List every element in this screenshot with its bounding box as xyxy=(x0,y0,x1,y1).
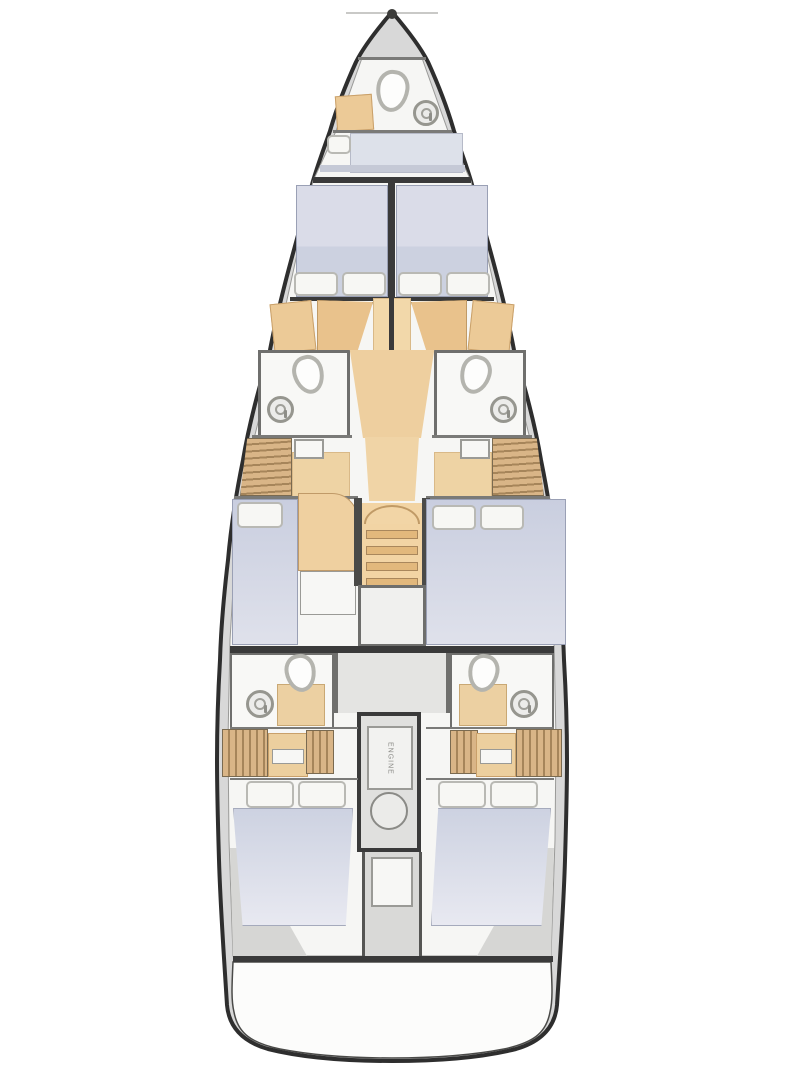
stair-tread xyxy=(366,562,418,571)
stern-bulkhead xyxy=(233,956,553,962)
aft-port-pillow-1 xyxy=(246,781,294,808)
engine-room-forward-area xyxy=(334,653,450,713)
mid-starboard-cabin-floor xyxy=(434,452,492,500)
companionway-stairs xyxy=(362,503,422,585)
forward-centerline-wall xyxy=(388,183,395,300)
forward-port-pillow-2 xyxy=(342,272,386,296)
mid-port-hanging-locker xyxy=(240,438,292,496)
mid-starboard-seat xyxy=(460,439,490,459)
sink-tap xyxy=(528,705,531,713)
aft-port-entry-step xyxy=(272,749,304,764)
engine-compartment: ENGINE xyxy=(357,712,421,852)
stair-arch xyxy=(364,505,420,524)
aft-locker-hatch xyxy=(371,857,413,907)
companionway-wall-port xyxy=(354,498,362,586)
aft-port-pillow-2 xyxy=(298,781,346,808)
stair-tread xyxy=(366,530,418,539)
port-vanity-cabinet xyxy=(270,300,317,354)
transom-platform xyxy=(232,962,552,1058)
stair-tread xyxy=(366,546,418,555)
sink-tap xyxy=(264,705,267,713)
bow-fitting xyxy=(387,9,397,19)
aft-head-port-sink-icon xyxy=(246,690,274,718)
mid-port-head-aft-wall xyxy=(252,435,352,438)
mid-port-cabinet xyxy=(298,493,358,571)
companionway-landing xyxy=(358,585,426,647)
aft-starboard-pillow-1 xyxy=(438,781,486,808)
engine-label: ENGINE xyxy=(387,742,394,775)
aft-starboard-hanging-locker-inner xyxy=(450,730,478,774)
forward-starboard-pillow-1 xyxy=(398,272,442,296)
aft-starboard-pillow-2 xyxy=(490,781,538,808)
sink-tap xyxy=(284,410,287,418)
bow-sink-icon xyxy=(413,100,439,126)
aft-head-starboard-sink-icon xyxy=(510,690,538,718)
aft-starboard-bed-wall xyxy=(426,778,554,780)
aft-port-hanging-locker-outer xyxy=(222,729,268,777)
aft-port-bed-wall xyxy=(230,778,358,780)
bow-berth-pillow xyxy=(327,135,351,154)
engine-icon xyxy=(370,792,408,830)
corridor-wood-upper xyxy=(348,350,436,438)
sink-tap xyxy=(507,410,510,418)
aft-starboard-entry-step xyxy=(480,749,512,764)
bow-head-forward-wall xyxy=(358,57,426,60)
starboard-vanity-cabinet xyxy=(468,300,515,354)
mid-starboard-pillow-1 xyxy=(432,505,476,530)
aft-bulkhead xyxy=(230,646,554,653)
desk-band-centerline xyxy=(389,298,394,351)
mid-head-port-sink-icon xyxy=(267,396,294,423)
bow-head-cabinet xyxy=(335,94,374,132)
mid-port-floor xyxy=(300,571,356,615)
sink-tap xyxy=(429,113,432,121)
bow-berth-edge xyxy=(320,165,465,172)
mid-starboard-head-aft-wall xyxy=(432,435,532,438)
yacht-deck-plan: ENGINE xyxy=(0,0,810,1080)
mid-port-pillow xyxy=(237,502,283,528)
aft-starboard-hanging-locker-outer xyxy=(516,729,562,777)
aft-port-hanging-locker-inner xyxy=(306,730,334,774)
forward-port-pillow-1 xyxy=(294,272,338,296)
mid-starboard-pillow-2 xyxy=(480,505,524,530)
aft-port-bed xyxy=(233,808,353,926)
corridor-wood-lower xyxy=(362,437,422,501)
mid-head-starboard-sink-icon xyxy=(490,396,517,423)
aft-starboard-bed xyxy=(431,808,551,926)
engine-access-panel: ENGINE xyxy=(367,726,413,790)
mid-port-seat xyxy=(294,439,324,459)
mid-starboard-hanging-locker xyxy=(492,438,544,496)
forward-starboard-pillow-2 xyxy=(446,272,490,296)
